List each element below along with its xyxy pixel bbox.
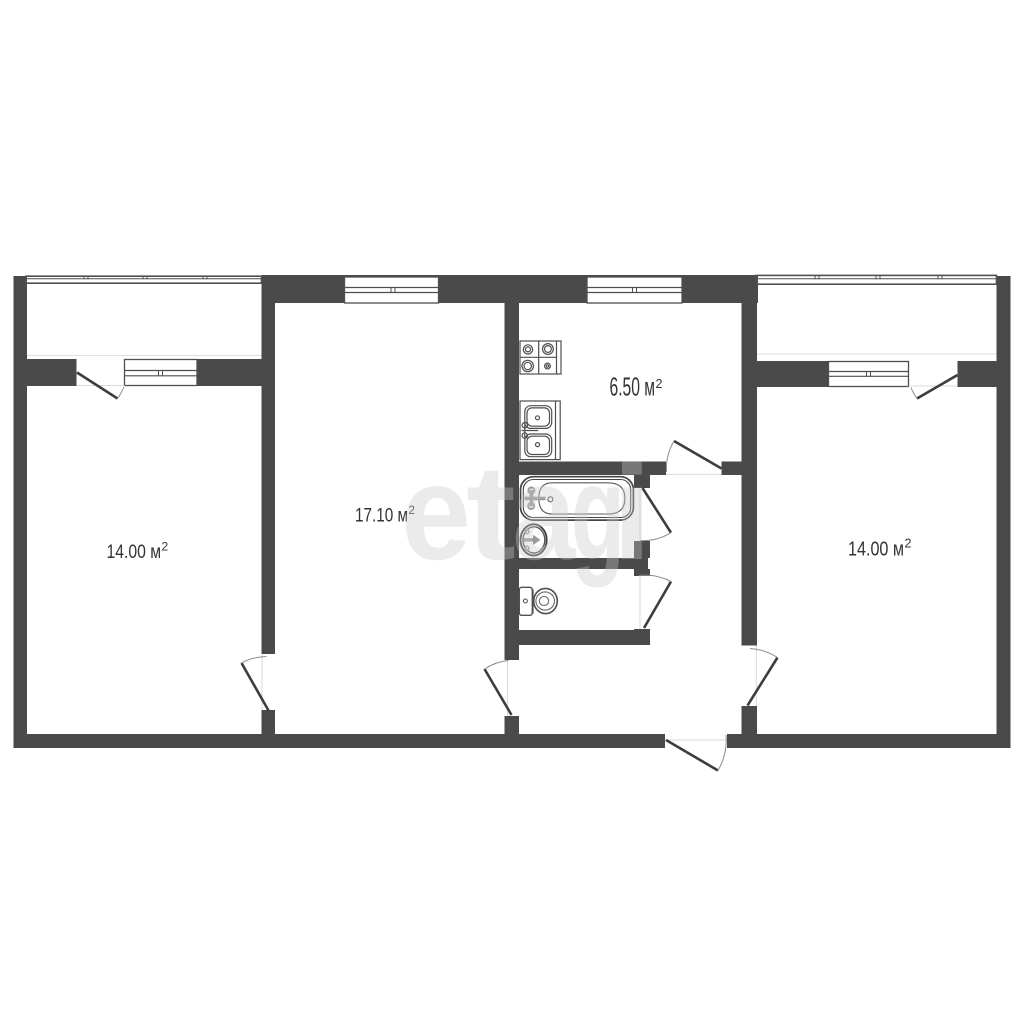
- svg-text:2: 2: [656, 377, 663, 391]
- svg-text:t: t: [466, 436, 516, 588]
- svg-text:14.00 м: 14.00 м: [848, 538, 904, 560]
- svg-text:e: e: [401, 436, 471, 588]
- svg-text:a: a: [513, 436, 577, 588]
- svg-text:14.00 м: 14.00 м: [107, 541, 162, 563]
- svg-text:6.50 м: 6.50 м: [610, 372, 656, 402]
- svg-text:2: 2: [162, 540, 169, 554]
- svg-text:i: i: [612, 436, 652, 588]
- svg-text:2: 2: [905, 537, 912, 551]
